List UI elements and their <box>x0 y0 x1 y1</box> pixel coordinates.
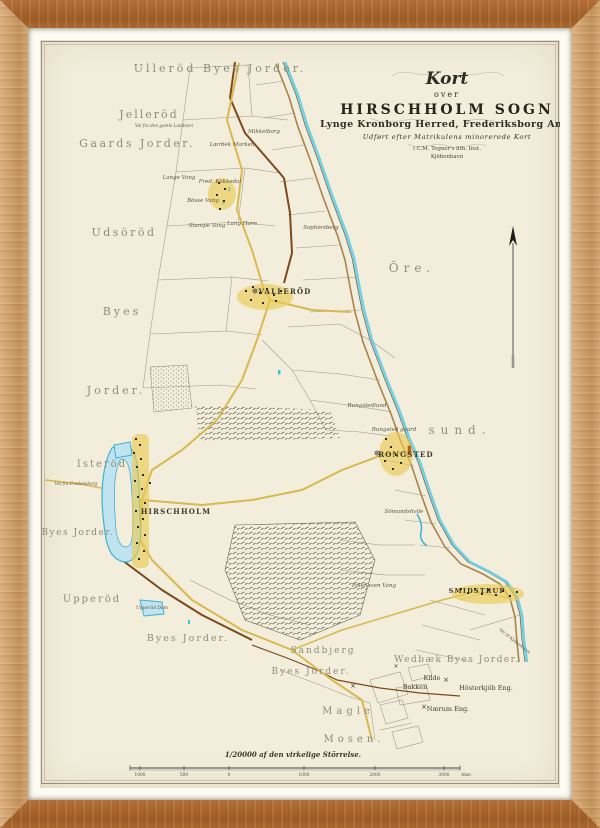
map-label: Sophienberg <box>303 225 339 231</box>
map-label: 0 <box>228 773 231 778</box>
map-label: 1000 <box>135 773 146 778</box>
map-label: Fred. Kokkedal <box>198 179 242 185</box>
scale-bar: 1/20000 af den virkelige Störrelse. <box>130 750 460 771</box>
map-label: Öre. <box>389 259 436 275</box>
map-label: Gaards Jorder. <box>79 137 195 150</box>
map-label: Lærbek Marken <box>209 142 255 148</box>
map-label: Vei fra den gamle Landevei <box>135 123 194 128</box>
map-paper: Kort over HIRSCHHOLM SOGN Lynge Kronborg… <box>40 40 560 788</box>
map-label: Mosen. <box>324 734 385 745</box>
title-sub: Lynge Kronborg Herred, Frederiksborg Amt… <box>320 119 560 130</box>
map-label: Sandbjerg <box>290 646 355 656</box>
map-label: Sömandshvile <box>385 509 425 515</box>
map-label: Byes Jorder. <box>271 667 350 677</box>
map-label: Rungstedlund <box>347 403 387 409</box>
map-label: × <box>443 676 449 684</box>
roads-yellow <box>45 63 510 740</box>
map-label: × <box>393 663 398 670</box>
map-label: RONGSTED <box>378 450 434 459</box>
map-label: Bösse Vang <box>186 198 219 204</box>
map-label: Upperöd Dam <box>136 605 168 611</box>
map-label: Isteröd <box>77 459 127 470</box>
map-label: Kilde <box>423 674 440 682</box>
title-over: over <box>434 90 460 99</box>
map-label: Hösterkjöb Eng. <box>459 684 513 692</box>
map-label: SMIDSTRUP <box>449 587 506 595</box>
map-label: 500 <box>180 773 188 778</box>
map-label: Vei fra Fredensborg <box>55 481 98 486</box>
map-label: Alen <box>460 773 471 778</box>
mat-border: Kort over HIRSCHHOLM SOGN Lynge Kronborg… <box>28 28 572 800</box>
title-note: Udført efter Matrikulens minorerede Kort <box>363 133 532 141</box>
north-needle <box>509 226 517 368</box>
map-label: Nærum Eng. <box>427 705 469 713</box>
map-label: 3000 <box>439 773 450 778</box>
map-label: Byes <box>103 305 141 318</box>
map-label: Vei til Kjöbenhavn <box>498 627 532 655</box>
scale-caption: 1/20000 af den virkelige Störrelse. <box>225 750 361 759</box>
wood-frame-right <box>572 0 600 828</box>
map-label: Jorder. <box>86 384 145 397</box>
framed-antique-map: Kort over HIRSCHHOLM SOGN Lynge Kronborg… <box>0 0 600 828</box>
map-canvas: Kort over HIRSCHHOLM SOGN Lynge Kronborg… <box>40 40 560 788</box>
map-label: Upperöd <box>63 594 121 605</box>
map-label: Lange Vang <box>162 175 196 181</box>
title-publisher: i C.M. Tegner's lith. Inst. <box>413 146 481 152</box>
map-label: Lang Horn <box>226 221 257 227</box>
map-label: sund. <box>428 423 491 437</box>
map-label: Rungsted gaard <box>371 427 417 433</box>
map-label: Wedbæk Byes Jorder. <box>394 655 520 665</box>
map-label: × <box>421 703 427 711</box>
wood-frame-bottom <box>0 800 600 828</box>
title-main: HIRSCHHOLM SOGN <box>340 102 554 118</box>
map-label: Magle <box>322 706 374 717</box>
map-label: Bakken <box>403 683 428 691</box>
map-label: VALLERÖD <box>257 287 311 296</box>
map-label: Byes Jorder. <box>41 528 114 538</box>
title-kort: Kort <box>425 69 469 89</box>
title-block: Kort over HIRSCHHOLM SOGN Lynge Kronborg… <box>320 69 560 160</box>
map-label: Udsöröd <box>91 226 156 239</box>
wood-frame-left <box>0 0 28 828</box>
wood-frame-top <box>0 0 600 28</box>
map-label: Jelleröd <box>118 108 178 121</box>
title-city: Kjöbenhavn <box>431 154 464 160</box>
map-label: 2000 <box>370 773 381 778</box>
map-label: Folehaven Vang <box>351 583 397 589</box>
map-label: × <box>350 682 356 690</box>
map-label: 1000 <box>299 773 310 778</box>
map-label: Stampe Vang <box>189 223 226 229</box>
map-label: Ulleröd Byes Jorder. <box>134 62 307 75</box>
map-label: Mikkelborg <box>247 129 281 135</box>
map-label: Byes Jorder. <box>147 633 229 644</box>
map-label: HIRSCHHOLM <box>141 507 211 516</box>
